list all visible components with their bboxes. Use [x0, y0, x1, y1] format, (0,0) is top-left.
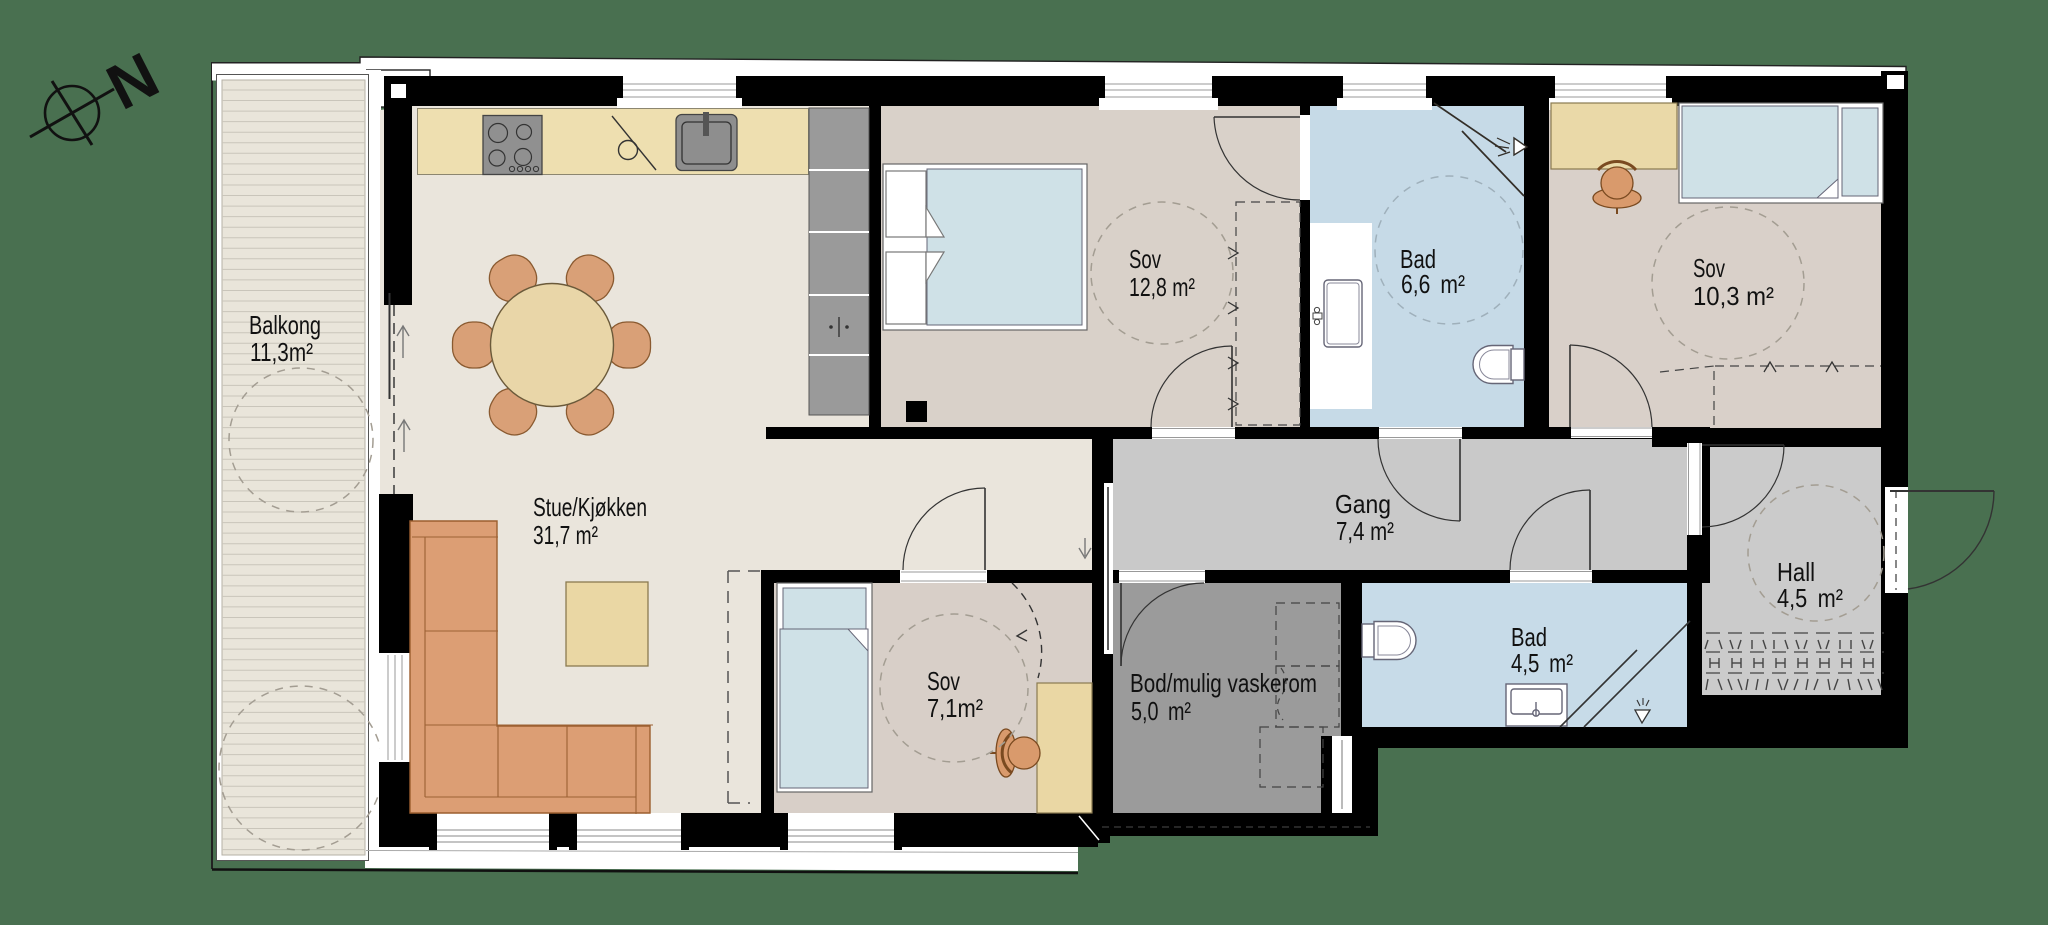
svg-text:31,7 m²: 31,7 m² [533, 520, 598, 550]
svg-text:6,6 m²: 6,6 m² [1401, 269, 1465, 299]
svg-text:7,4 m²: 7,4 m² [1336, 516, 1394, 546]
svg-text:5,0 m²: 5,0 m² [1131, 696, 1191, 726]
svg-text:Gang: Gang [1335, 489, 1391, 519]
svg-text:Sov: Sov [1129, 244, 1161, 274]
svg-text:Bod/mulig vaskerom: Bod/mulig vaskerom [1130, 668, 1317, 698]
svg-text:4,5 m²: 4,5 m² [1777, 583, 1843, 613]
svg-text:Stue/Kjøkken: Stue/Kjøkken [533, 492, 647, 522]
svg-text:Balkong: Balkong [249, 310, 321, 340]
svg-text:4,5 m²: 4,5 m² [1511, 648, 1573, 678]
svg-text:11,3m²: 11,3m² [250, 337, 313, 367]
svg-text:10,3 m²: 10,3 m² [1693, 281, 1774, 311]
svg-text:Sov: Sov [1693, 253, 1725, 283]
svg-text:12,8 m²: 12,8 m² [1129, 272, 1195, 302]
svg-text:7,1m²: 7,1m² [927, 693, 983, 723]
svg-text:Sov: Sov [927, 666, 960, 696]
